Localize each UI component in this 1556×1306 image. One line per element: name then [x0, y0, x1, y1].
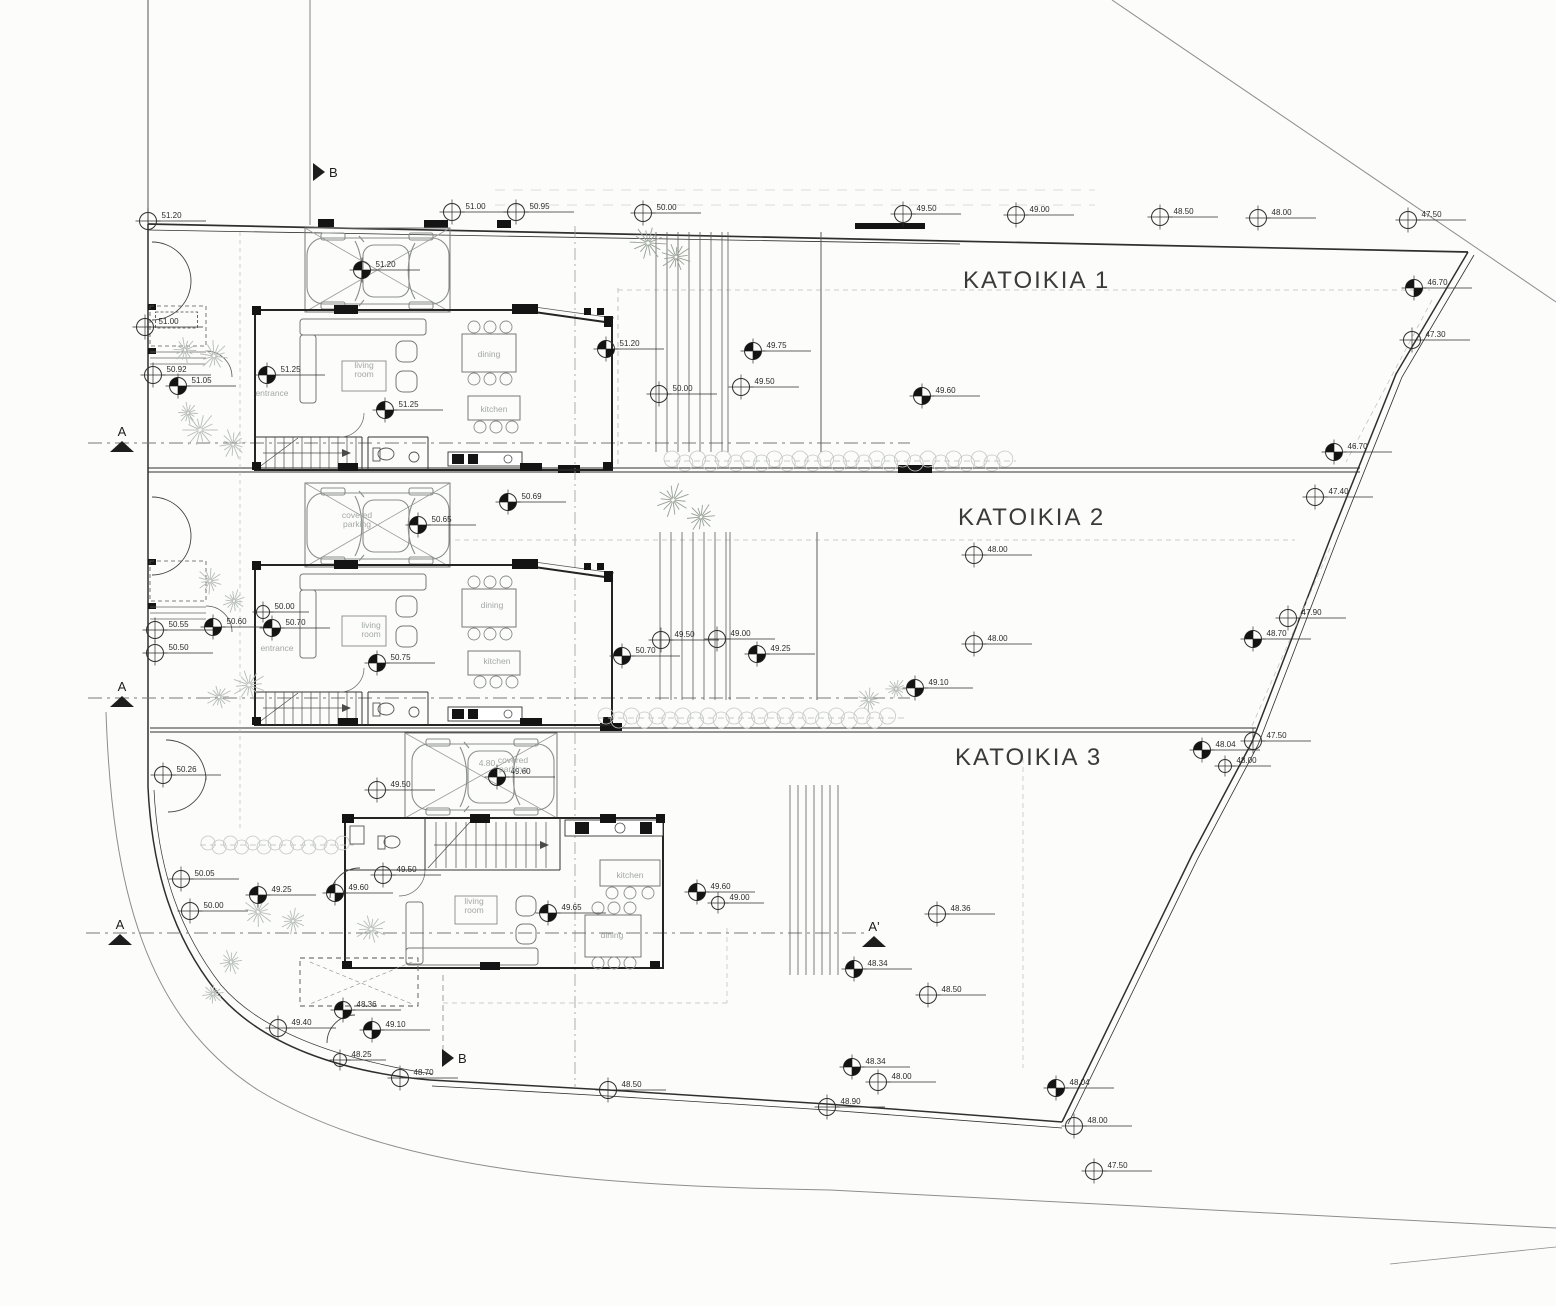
elevation-marker: 50.95: [504, 200, 575, 225]
tree-icon: [174, 337, 197, 363]
svg-text:50.69: 50.69: [522, 492, 543, 501]
elevation-marker: 49.50: [365, 778, 436, 803]
elevation-marker: 49.60: [910, 384, 981, 409]
svg-text:48.00: 48.00: [988, 634, 1009, 643]
svg-text:50.26: 50.26: [177, 765, 198, 774]
svg-text:48.00: 48.00: [1237, 756, 1258, 765]
label-entrance: entrance: [255, 388, 288, 398]
hedge-row: [598, 708, 908, 728]
elevation-marker: 50.70: [260, 616, 331, 641]
elevation-marker: 48.00: [962, 632, 1033, 657]
elevation-marker: 48.00: [1246, 206, 1317, 231]
svg-text:47.40: 47.40: [1329, 487, 1350, 496]
svg-text:parking: parking: [499, 764, 527, 774]
elevation-marker: 47.30: [1400, 328, 1471, 353]
elevation-marker: 50.75: [365, 651, 436, 676]
svg-text:48.34: 48.34: [866, 1057, 887, 1066]
svg-text:50.00: 50.00: [204, 901, 225, 910]
svg-text:51.25: 51.25: [399, 400, 420, 409]
svg-text:49.00: 49.00: [1030, 205, 1051, 214]
svg-text:48.90: 48.90: [841, 1097, 862, 1106]
elevation-marker: 48.70: [1241, 627, 1312, 652]
svg-text:48.04: 48.04: [1216, 740, 1237, 749]
elevation-marker: 50.00: [647, 382, 718, 407]
elevation-marker: 51.20: [594, 337, 665, 362]
svg-text:51.20: 51.20: [620, 339, 641, 348]
label-kitchen: kitchen: [484, 656, 511, 666]
elevation-marker: 51.00: [133, 312, 204, 340]
svg-text:49.00: 49.00: [731, 629, 752, 638]
svg-text:48.70: 48.70: [1267, 629, 1288, 638]
door-swing: [327, 1015, 355, 1043]
svg-text:50.75: 50.75: [391, 653, 412, 662]
tree-icon: [220, 430, 247, 459]
svg-text:48.04: 48.04: [1070, 1078, 1091, 1087]
elevation-marker: 48.00: [962, 543, 1033, 568]
svg-text:49.60: 49.60: [936, 386, 957, 395]
svg-text:49.40: 49.40: [292, 1018, 313, 1027]
elevation-marker: 50.26: [151, 763, 222, 788]
label-dining: dining: [478, 349, 501, 359]
elevation-marker: 49.10: [360, 1018, 431, 1043]
svg-text:50.95: 50.95: [530, 202, 551, 211]
section-marker-a: A: [108, 917, 132, 945]
svg-text:50.70: 50.70: [636, 646, 657, 655]
elevation-marker: 49.40: [266, 1016, 337, 1041]
elevation-marker: 51.05: [166, 374, 237, 399]
svg-text:50.55: 50.55: [169, 620, 190, 629]
elevation-marker: 50.55: [143, 618, 214, 643]
elevation-marker: 48.36: [925, 902, 996, 927]
label-living: livingroom: [354, 360, 374, 379]
svg-text:51.05: 51.05: [192, 376, 213, 385]
svg-text:dining: dining: [601, 930, 624, 940]
svg-text:49.50: 49.50: [917, 204, 938, 213]
elevation-marker: 50.05: [169, 867, 240, 892]
svg-text:B: B: [458, 1051, 467, 1066]
road-edges: [106, 0, 1556, 1264]
elevation-marker: 50.00: [178, 899, 249, 924]
tree-icon: [687, 505, 715, 530]
svg-text:48.36: 48.36: [951, 904, 972, 913]
svg-text:47.50: 47.50: [1422, 210, 1443, 219]
site-plan-drawing: 51.2051.0050.9550.0049.5049.0048.5048.00…: [0, 0, 1556, 1306]
elevation-marker: 49.25: [745, 642, 816, 667]
svg-text:48.50: 48.50: [942, 985, 963, 994]
site-plan-sheet: 51.2051.0050.9550.0049.5049.0048.5048.00…: [0, 0, 1556, 1306]
plot-dividers: [148, 219, 1360, 732]
svg-text:A': A': [868, 919, 879, 934]
svg-text:50.05: 50.05: [195, 869, 216, 878]
svg-text:4.80: 4.80: [479, 758, 496, 768]
svg-text:50.70: 50.70: [286, 618, 307, 627]
tree-icon: [234, 671, 264, 700]
svg-text:49.10: 49.10: [929, 678, 950, 687]
svg-text:50.00: 50.00: [673, 384, 694, 393]
elevation-marker: 47.50: [1082, 1159, 1153, 1184]
elevation-marker: 49.00: [708, 893, 765, 914]
svg-text:48.00: 48.00: [988, 545, 1009, 554]
svg-text:48.50: 48.50: [622, 1080, 643, 1089]
label-kitchen: kitchen: [481, 404, 508, 414]
elevation-marker: 47.50: [1396, 208, 1467, 233]
house-title: KATOIKIA 2: [958, 504, 1105, 531]
svg-text:49.65: 49.65: [562, 903, 583, 912]
svg-text:dining: dining: [478, 349, 501, 359]
svg-text:49.00: 49.00: [730, 893, 751, 902]
sink-icon: [350, 826, 364, 844]
svg-text:50.92: 50.92: [167, 365, 188, 374]
section-marker-b: B: [313, 163, 338, 181]
terrace-steps: [656, 232, 838, 975]
elevation-marker: 49.00: [1004, 203, 1075, 228]
house-3-plan: [166, 733, 665, 1043]
elevation-marker: 47.40: [1303, 485, 1374, 510]
tree-icon: [630, 228, 667, 259]
armchair: [516, 896, 536, 916]
armchair: [516, 924, 536, 944]
elevation-marker: 49.60: [323, 881, 394, 906]
svg-text:parking: parking: [343, 519, 371, 529]
elevation-marker: 46.70: [1402, 276, 1473, 301]
hedge-row: [200, 836, 354, 854]
svg-text:51.00: 51.00: [159, 317, 180, 326]
svg-text:49.60: 49.60: [711, 882, 732, 891]
section-marker-a: A: [110, 424, 134, 452]
house-titles: KATOIKIA 1KATOIKIA 2KATOIKIA 3: [955, 267, 1110, 771]
svg-text:48.00: 48.00: [1088, 1116, 1109, 1125]
elevation-marker: 49.00: [705, 627, 776, 652]
svg-text:50.65: 50.65: [432, 515, 453, 524]
tree-icon: [357, 916, 385, 943]
svg-text:entrance: entrance: [260, 643, 293, 653]
elevation-marker: 50.50: [143, 641, 214, 666]
tree-icon: [657, 483, 688, 517]
label-kitchen: kitchen: [617, 870, 644, 880]
svg-text:49.10: 49.10: [386, 1020, 407, 1029]
elevation-marker: 48.50: [916, 983, 987, 1008]
elevation-marker: 49.25: [246, 883, 317, 908]
svg-text:room: room: [354, 369, 373, 379]
svg-text:47.90: 47.90: [1302, 608, 1323, 617]
tree-icon: [662, 244, 690, 270]
tree-icon: [282, 908, 304, 934]
tree-icon: [182, 415, 217, 445]
tree-icon: [859, 688, 880, 713]
svg-text:49.50: 49.50: [391, 780, 412, 789]
elevation-marker: 47.90: [1276, 606, 1347, 631]
tree-icon: [199, 568, 221, 594]
svg-text:49.75: 49.75: [767, 341, 788, 350]
elevation-marker: 48.00: [1062, 1114, 1133, 1139]
svg-text:48.00: 48.00: [892, 1072, 913, 1081]
elevation-marker: 50.65: [406, 513, 477, 538]
label-dining: dining: [481, 600, 504, 610]
svg-text:49.60: 49.60: [349, 883, 370, 892]
svg-text:47.30: 47.30: [1426, 330, 1447, 339]
svg-text:room: room: [464, 905, 483, 915]
svg-text:kitchen: kitchen: [484, 656, 511, 666]
label-entrance: entrance: [260, 643, 293, 653]
svg-text:B: B: [329, 165, 338, 180]
elevation-marker: 48.04: [1044, 1076, 1115, 1101]
svg-text:51.00: 51.00: [466, 202, 487, 211]
svg-text:kitchen: kitchen: [617, 870, 644, 880]
elevation-marker: 48.90: [815, 1095, 886, 1120]
tree-icon: [200, 340, 228, 367]
section-marker-b: B: [442, 1049, 467, 1067]
svg-text:dining: dining: [481, 600, 504, 610]
tree-icon: [223, 590, 244, 613]
section-markers: BBAAAA': [108, 163, 886, 1067]
label-dining: dining: [601, 930, 624, 940]
wall-piers: [342, 814, 665, 970]
svg-text:48.25: 48.25: [352, 1050, 373, 1059]
elevation-marker: 48.00: [866, 1070, 937, 1095]
svg-text:room: room: [361, 629, 380, 639]
svg-text:50.50: 50.50: [169, 643, 190, 652]
tree-icon: [207, 686, 230, 708]
house-2-plan: [148, 483, 614, 726]
svg-text:48.36: 48.36: [357, 1000, 378, 1009]
house-title: KATOIKIA 1: [963, 267, 1110, 294]
tree-icon: [220, 950, 242, 974]
elevation-marker: 46.70: [1322, 440, 1393, 465]
svg-text:49.25: 49.25: [272, 885, 293, 894]
label-living: livingroom: [464, 896, 484, 915]
elevation-marker: 48.50: [1148, 205, 1219, 230]
svg-text:50.00: 50.00: [657, 203, 678, 212]
label-living: livingroom: [361, 620, 381, 639]
svg-text:entrance: entrance: [255, 388, 288, 398]
elevation-marker: 49.50: [729, 375, 800, 400]
toilet-icon: [384, 836, 400, 848]
room-labels: livingroomdiningkitchenentrancecoveredpa…: [255, 349, 643, 940]
svg-text:48.50: 48.50: [1174, 207, 1195, 216]
svg-text:A: A: [116, 917, 125, 932]
elevation-marker: 51.25: [255, 363, 326, 388]
label-covered: coveredparking: [498, 755, 529, 774]
elevation-marker: 50.69: [496, 490, 567, 515]
elevation-marker: 51.20: [136, 209, 207, 234]
svg-text:49.50: 49.50: [675, 630, 696, 639]
svg-text:50.00: 50.00: [275, 602, 296, 611]
svg-text:50.60: 50.60: [227, 617, 248, 626]
label-covered: coveredparking: [342, 510, 373, 529]
hedges: [200, 451, 1016, 854]
house-title: KATOIKIA 3: [955, 744, 1102, 771]
label-4.80: 4.80: [479, 758, 496, 768]
elevation-marker: 48.36: [331, 998, 402, 1023]
gate-swing: [166, 740, 206, 780]
section-marker-ap: A': [862, 919, 886, 947]
elevation-marker: 49.75: [741, 339, 812, 364]
elevation-marker: 51.25: [373, 398, 444, 423]
svg-text:48.34: 48.34: [868, 959, 889, 968]
elevation-marker: 49.10: [903, 676, 974, 701]
svg-text:kitchen: kitchen: [481, 404, 508, 414]
stairs-direction-arrow: [540, 841, 549, 849]
elevation-marker: 50.70: [610, 644, 681, 669]
svg-text:47.50: 47.50: [1108, 1161, 1129, 1170]
elevation-marker: 49.50: [371, 863, 442, 888]
svg-text:48.70: 48.70: [414, 1068, 435, 1077]
svg-text:49.50: 49.50: [755, 377, 776, 386]
section-marker-a: A: [110, 679, 134, 707]
elevation-marker: 48.34: [842, 957, 913, 982]
svg-text:49.50: 49.50: [397, 865, 418, 874]
svg-text:46.70: 46.70: [1348, 442, 1369, 451]
elevation-marker: 49.65: [536, 901, 607, 926]
svg-text:51.25: 51.25: [281, 365, 302, 374]
svg-text:46.70: 46.70: [1428, 278, 1449, 287]
svg-text:A: A: [118, 424, 127, 439]
svg-text:51.20: 51.20: [376, 260, 397, 269]
tree-icon: [178, 402, 198, 424]
svg-text:49.25: 49.25: [771, 644, 792, 653]
svg-text:47.50: 47.50: [1267, 731, 1288, 740]
svg-text:51.20: 51.20: [162, 211, 183, 220]
gate-swing: [168, 776, 206, 812]
elevation-marker: 50.00: [631, 201, 702, 226]
tree-icon: [885, 680, 906, 698]
svg-text:48.00: 48.00: [1272, 208, 1293, 217]
svg-text:A: A: [118, 679, 127, 694]
